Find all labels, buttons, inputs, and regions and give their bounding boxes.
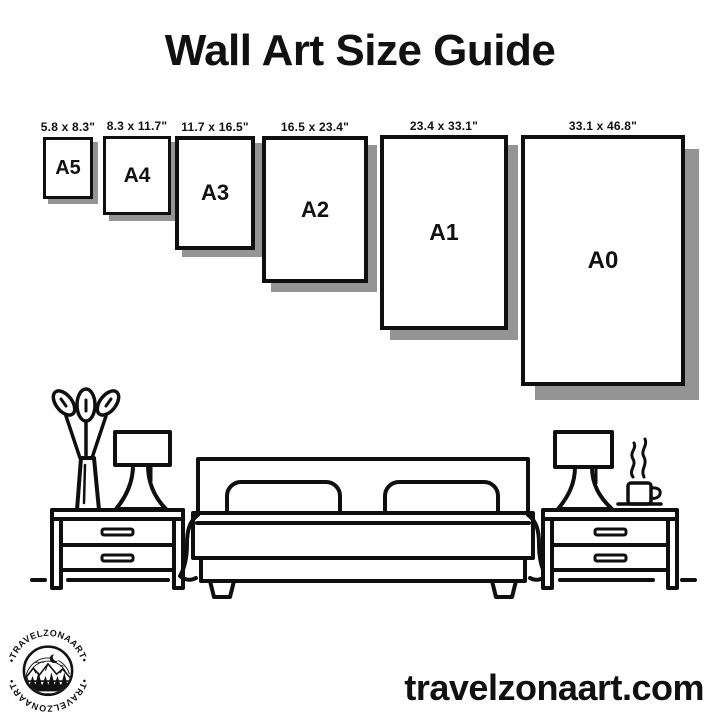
- paper-a4-dimensions: 8.3 x 11.7": [107, 119, 168, 133]
- paper-a3-label: A3: [201, 180, 229, 206]
- paper-a5: 5.8 x 8.3" A5: [43, 137, 93, 199]
- page-title: Wall Art Size Guide: [0, 26, 720, 76]
- paper-a4: 8.3 x 11.7" A4: [103, 136, 171, 215]
- double-bed-icon: [180, 459, 546, 597]
- paper-a2: 16.5 x 23.4" A2: [262, 136, 368, 283]
- paper-a2-label: A2: [301, 197, 329, 223]
- bedroom-illustration: [0, 380, 720, 605]
- paper-a0-label: A0: [588, 247, 619, 275]
- paper-a1: 23.4 x 33.1" A1: [380, 135, 508, 330]
- website-url: travelzonaart.com: [404, 667, 704, 709]
- brand-logo-badge-icon: •TRAVELZONAART• •TRAVELZONAART•: [5, 624, 91, 714]
- paper-a3-dimensions: 11.7 x 16.5": [181, 120, 248, 134]
- paper-a0: 33.1 x 46.8" A0: [521, 135, 685, 386]
- table-lamp-right-icon: [555, 432, 612, 509]
- nightstand-right-icon: [543, 510, 677, 588]
- paper-a2-dimensions: 16.5 x 23.4": [281, 120, 349, 134]
- paper-a1-dimensions: 23.4 x 33.1": [410, 119, 478, 133]
- plant-vase-icon: [49, 387, 123, 510]
- paper-a4-label: A4: [124, 164, 151, 188]
- paper-a3: 11.7 x 16.5" A3: [175, 136, 255, 250]
- coffee-mug-steam-icon: [618, 439, 661, 504]
- paper-a1-label: A1: [429, 219, 458, 246]
- table-lamp-left-icon: [115, 432, 170, 509]
- nightstand-left-icon: [52, 510, 183, 588]
- paper-a5-label: A5: [55, 157, 81, 180]
- paper-a5-dimensions: 5.8 x 8.3": [41, 120, 95, 134]
- paper-a0-dimensions: 33.1 x 46.8": [569, 119, 637, 133]
